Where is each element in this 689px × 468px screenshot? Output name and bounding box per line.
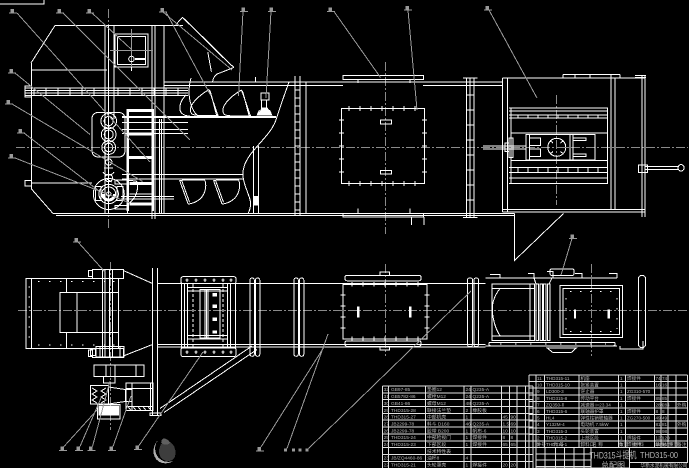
- svg-text:垫圈12: 垫圈12: [427, 386, 442, 393]
- svg-text:THD315-21: THD315-21: [391, 463, 416, 468]
- svg-text:49: 49: [662, 416, 668, 421]
- svg-text:HL4: HL4: [546, 416, 555, 421]
- svg-text:焊接件: 焊接件: [627, 395, 641, 402]
- svg-text:Y132M-4: Y132M-4: [546, 422, 565, 427]
- svg-text:20: 20: [503, 463, 509, 468]
- svg-text:24: 24: [466, 387, 472, 393]
- svg-text:1.5: 1.5: [503, 421, 510, 427]
- svg-text:11: 11: [537, 376, 542, 381]
- svg-text:4: 4: [466, 456, 469, 462]
- svg-text:焊接件: 焊接件: [473, 441, 488, 448]
- svg-text:26: 26: [384, 428, 390, 434]
- svg-text:THD315-3: THD315-3: [546, 429, 568, 434]
- svg-text:数量: 数量: [619, 441, 629, 448]
- svg-text:螺母M12: 螺母M12: [427, 400, 446, 407]
- svg-text:1: 1: [620, 435, 623, 440]
- svg-text:74: 74: [656, 376, 662, 381]
- svg-text:30: 30: [384, 401, 390, 407]
- svg-text:Q235-A: Q235-A: [473, 421, 490, 427]
- svg-text:件号: 件号: [537, 441, 547, 448]
- svg-text:焊接件: 焊接件: [473, 434, 488, 441]
- svg-text:GB5782-86: GB5782-86: [391, 394, 416, 400]
- svg-text:9: 9: [537, 389, 540, 394]
- svg-text:JB/ZQ4460-86: JB/ZQ4460-86: [391, 456, 423, 462]
- svg-text:10: 10: [537, 383, 543, 388]
- svg-text:24: 24: [384, 442, 390, 448]
- svg-text:3: 3: [537, 429, 540, 434]
- svg-text:技术特性表: 技术特性表: [427, 448, 451, 455]
- svg-text:69: 69: [511, 421, 517, 427]
- svg-text:10: 10: [511, 428, 517, 434]
- svg-text:橡胶板: 橡胶板: [473, 407, 488, 414]
- svg-text:81: 81: [656, 422, 662, 427]
- svg-text:中部检视门: 中部检视门: [427, 434, 451, 441]
- svg-text:THD315-10: THD315-10: [546, 383, 570, 388]
- svg-text:逆止器: 逆止器: [581, 388, 595, 395]
- svg-text:JB2299-78: JB2299-78: [391, 421, 415, 427]
- svg-text:81: 81: [662, 422, 668, 427]
- svg-text:焊接件: 焊接件: [627, 375, 641, 382]
- svg-text:1: 1: [466, 463, 469, 468]
- svg-text:LD300-3: LD300-3: [546, 389, 564, 394]
- svg-text:电动机 7.5kW: 电动机 7.5kW: [581, 421, 610, 428]
- svg-text:1: 1: [620, 402, 623, 407]
- svg-text:85: 85: [662, 396, 668, 401]
- svg-text:1: 1: [620, 422, 623, 427]
- svg-text:材 料: 材 料: [633, 441, 644, 448]
- svg-text:1: 1: [620, 389, 623, 394]
- svg-text:GB97-85: GB97-85: [391, 387, 411, 393]
- svg-text:焊接件: 焊接件: [627, 408, 641, 415]
- svg-text:22: 22: [384, 463, 390, 468]
- svg-text:Q235-A: Q235-A: [473, 401, 490, 407]
- svg-text:油杯8: 油杯8: [427, 455, 440, 462]
- svg-text:1: 1: [466, 435, 469, 441]
- svg-text:上部区段: 上部区段: [581, 434, 600, 441]
- svg-text:31: 31: [384, 394, 390, 400]
- svg-text:联接法兰垫: 联接法兰垫: [427, 407, 451, 414]
- svg-text:10: 10: [503, 428, 509, 434]
- svg-text:张紧装置: 张紧装置: [581, 382, 600, 389]
- svg-text:1: 1: [466, 415, 469, 421]
- svg-text:THD315-27: THD315-27: [391, 415, 416, 421]
- svg-text:THD315-23: THD315-23: [391, 442, 416, 448]
- svg-text:85: 85: [656, 396, 662, 401]
- svg-text:74: 74: [662, 376, 668, 381]
- svg-text:8: 8: [537, 396, 540, 401]
- svg-text:25: 25: [384, 435, 390, 441]
- svg-text:98: 98: [662, 429, 668, 434]
- svg-text:THD315-00: THD315-00: [640, 451, 678, 460]
- svg-text:46: 46: [466, 421, 472, 427]
- svg-text:49: 49: [656, 416, 662, 421]
- svg-text:中部机壳: 中部机壳: [427, 414, 446, 421]
- svg-text:THD315-24: THD315-24: [391, 435, 416, 441]
- svg-text:48: 48: [466, 401, 472, 407]
- svg-text:ZG270-500: ZG270-500: [627, 416, 651, 421]
- svg-text:1: 1: [620, 383, 623, 388]
- svg-text:Q235-A: Q235-A: [473, 394, 490, 400]
- svg-text:120: 120: [662, 435, 670, 440]
- svg-text:16: 16: [656, 383, 662, 388]
- svg-text:16: 16: [662, 383, 668, 388]
- svg-text:1: 1: [466, 442, 469, 448]
- svg-text:总配图: 总配图: [601, 460, 625, 468]
- svg-text:45: 45: [503, 415, 509, 421]
- svg-text:8: 8: [662, 409, 665, 414]
- svg-text:机座: 机座: [581, 375, 591, 382]
- svg-text:ZG310-570: ZG310-570: [627, 389, 651, 394]
- svg-text:65: 65: [511, 442, 517, 448]
- svg-text:THD315-6: THD315-6: [546, 409, 568, 414]
- svg-text:THD315-2: THD315-2: [546, 435, 568, 440]
- svg-text:弹性柱销联轴器: 弹性柱销联轴器: [581, 415, 614, 422]
- svg-text:THD315-8: THD315-8: [546, 396, 568, 401]
- svg-text:7: 7: [537, 402, 540, 407]
- svg-text:29: 29: [384, 408, 390, 414]
- svg-text:头轮装置: 头轮装置: [581, 428, 600, 435]
- svg-text:名 称: 名 称: [592, 441, 603, 448]
- svg-text:8: 8: [503, 435, 506, 441]
- svg-text:2: 2: [466, 408, 469, 414]
- svg-text:98: 98: [656, 429, 662, 434]
- svg-text:4: 4: [537, 422, 540, 427]
- svg-text:JB2299-78: JB2299-78: [391, 428, 415, 434]
- svg-text:1: 1: [620, 409, 623, 414]
- svg-text:螺栓M12: 螺栓M12: [427, 393, 446, 400]
- svg-text:焊接件: 焊接件: [627, 434, 641, 441]
- svg-text:外购: 外购: [677, 401, 687, 408]
- svg-text:20: 20: [511, 463, 517, 468]
- svg-text:8: 8: [656, 409, 659, 414]
- svg-text:传动平台: 传动平台: [581, 395, 600, 402]
- svg-text:27: 27: [384, 421, 390, 427]
- svg-text:Q235-A: Q235-A: [473, 387, 490, 393]
- svg-text:23: 23: [384, 456, 390, 462]
- svg-text:1: 1: [620, 429, 623, 434]
- svg-text:1: 1: [620, 376, 623, 381]
- svg-text:2: 2: [537, 435, 540, 440]
- svg-text:65: 65: [503, 442, 509, 448]
- svg-text:代 号: 代 号: [553, 441, 564, 448]
- svg-text:90: 90: [511, 415, 517, 421]
- svg-text:1: 1: [620, 416, 623, 421]
- svg-text:ZQ350-Ⅱ: ZQ350-Ⅱ: [546, 402, 564, 407]
- svg-text:284: 284: [662, 402, 670, 407]
- svg-text:1: 1: [466, 428, 469, 434]
- svg-text:32: 32: [384, 387, 390, 393]
- svg-text:1: 1: [620, 396, 623, 401]
- svg-text:6: 6: [537, 409, 540, 414]
- svg-text:8: 8: [511, 435, 514, 441]
- svg-text:减速器 i=23.34: 减速器 i=23.34: [581, 401, 612, 408]
- svg-text:下部区段: 下部区段: [427, 441, 446, 448]
- svg-text:GB41-86: GB41-86: [391, 401, 411, 407]
- svg-text:料斗 D160: 料斗 D160: [427, 420, 450, 427]
- svg-text:联轴器护罩: 联轴器护罩: [581, 408, 604, 415]
- svg-text:5: 5: [537, 416, 540, 421]
- svg-text:THD315-28: THD315-28: [391, 408, 416, 414]
- svg-text:24: 24: [466, 394, 472, 400]
- svg-text:备注: 备注: [677, 441, 687, 448]
- svg-text:帆布-6: 帆布-6: [473, 427, 487, 434]
- svg-text:外购: 外购: [677, 421, 687, 428]
- svg-text:THD315-11: THD315-11: [546, 376, 570, 381]
- svg-text:胶带 B200: 胶带 B200: [427, 427, 449, 434]
- svg-text:28: 28: [384, 415, 390, 421]
